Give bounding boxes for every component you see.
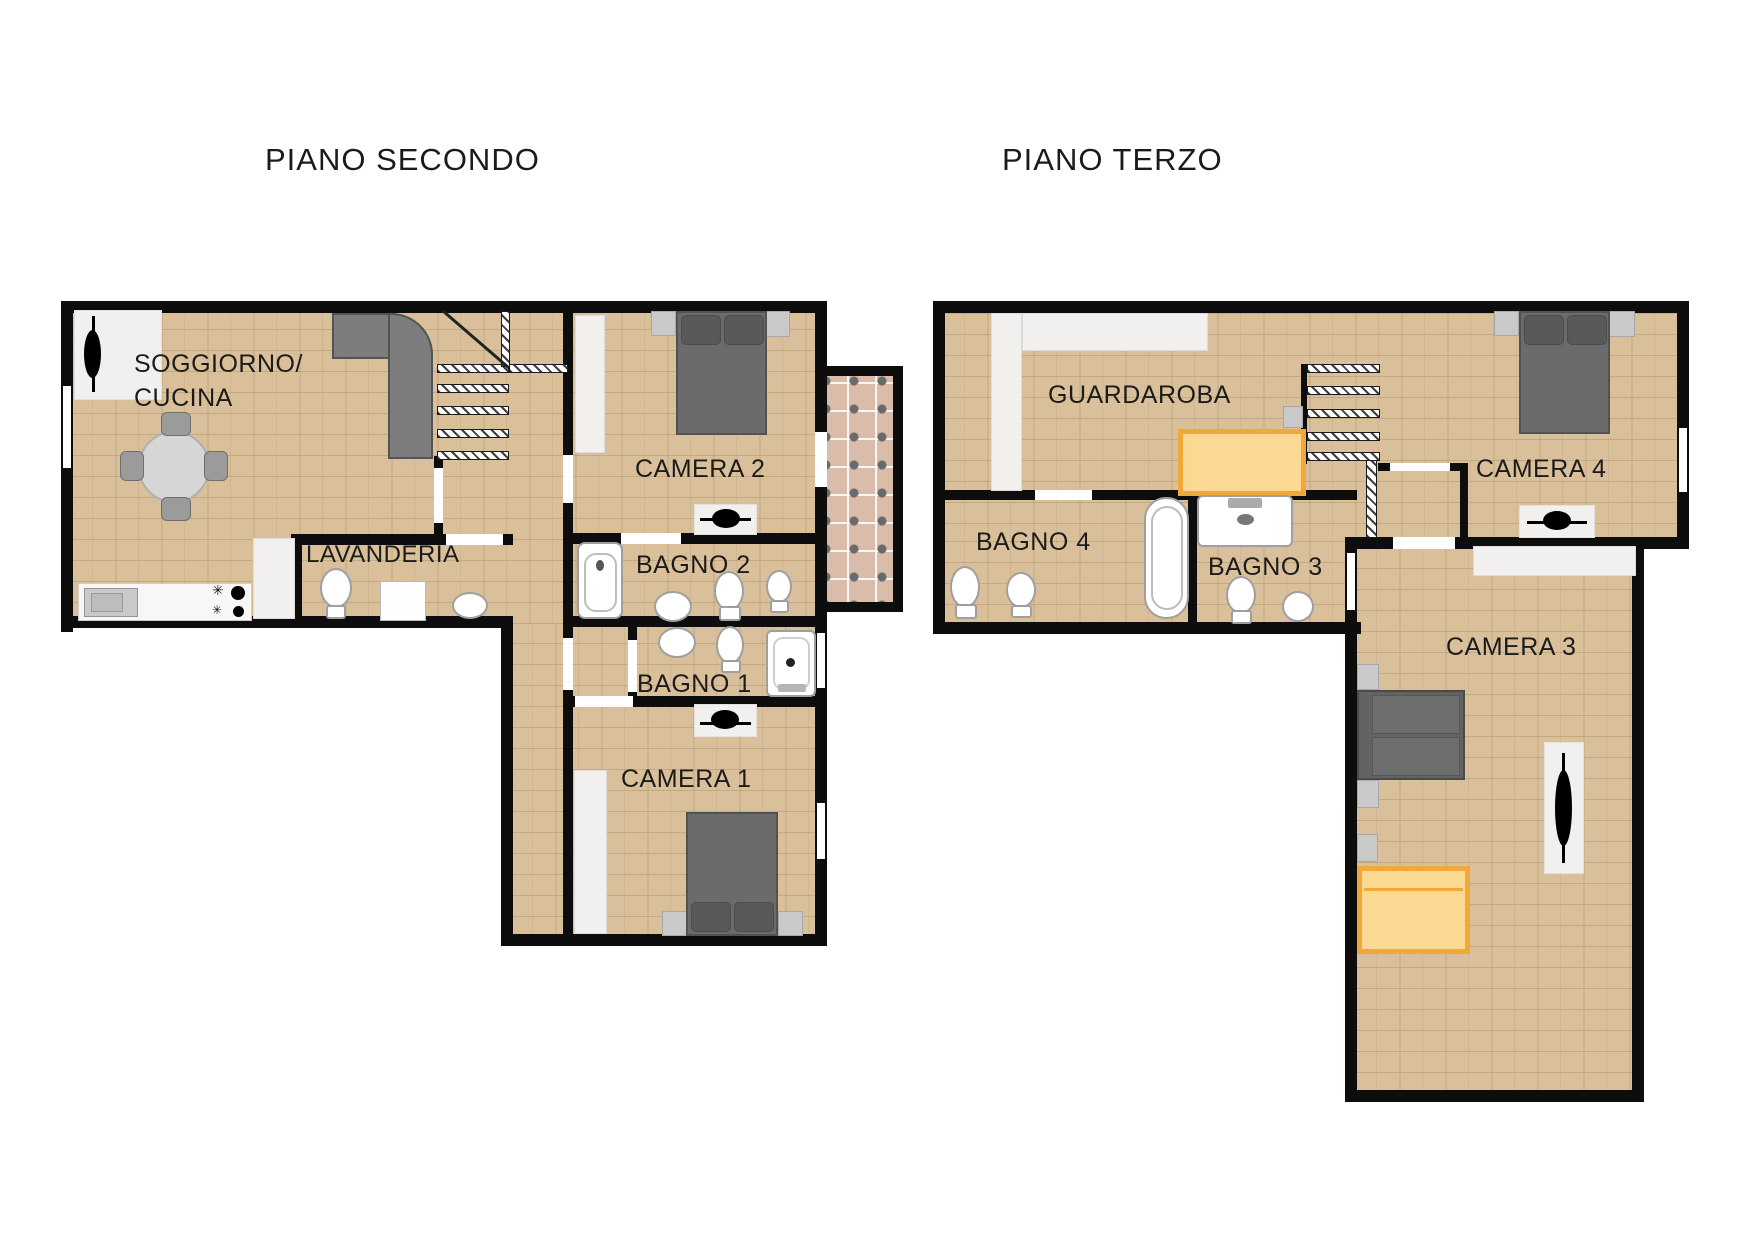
wall (1345, 537, 1357, 1102)
tv-icon (1555, 770, 1572, 846)
room-label-bagno3: BAGNO 3 (1208, 553, 1323, 582)
bidet-icon (1282, 591, 1314, 622)
room-label-camera2: CAMERA 2 (635, 455, 765, 484)
wardrobe-icon (575, 315, 605, 453)
orange-wardrobe-icon (1178, 429, 1306, 496)
wall (1188, 498, 1197, 628)
toilet-icon (1231, 610, 1252, 624)
toilet-icon (955, 604, 977, 619)
pillow (681, 315, 721, 345)
sofa-cushion (1372, 737, 1460, 776)
pillow (1524, 315, 1564, 345)
tv-icon (712, 509, 740, 528)
room-label-bagno2: BAGNO 2 (636, 551, 751, 580)
nightstand (778, 911, 803, 936)
toilet-icon (950, 566, 980, 608)
nightstand (764, 311, 790, 337)
stairs-icon (1307, 364, 1380, 373)
room-label-soggiorno-line2: CUCINA (134, 384, 233, 413)
nightstand (1609, 311, 1635, 337)
wardrobe-icon (1473, 546, 1636, 576)
nightstand (1357, 834, 1378, 862)
pillow (724, 315, 764, 345)
sink-icon (654, 591, 692, 622)
room-label-bagno4: BAGNO 4 (976, 528, 1091, 557)
door-opening (1390, 463, 1450, 471)
wall (1632, 545, 1644, 1102)
nightstand (662, 911, 687, 936)
room-label-bagno1: BAGNO 1 (637, 670, 752, 699)
room-label-camera1: CAMERA 1 (621, 765, 751, 794)
room-label-camera4: CAMERA 4 (1476, 455, 1606, 484)
pillow (734, 902, 774, 932)
bidet-icon (766, 570, 792, 603)
stairs-icon (1307, 432, 1380, 441)
room-label-guardaroba: GUARDAROBA (1048, 381, 1231, 410)
sofa-cushion (1372, 695, 1460, 734)
nightstand (1494, 311, 1519, 336)
bidet-icon (1006, 572, 1036, 608)
window-opening (1679, 428, 1687, 492)
wardrobe-icon (574, 770, 607, 934)
end-table (1357, 664, 1379, 690)
pillow (1567, 315, 1607, 345)
bidet-icon (770, 600, 789, 613)
stairs-icon (1307, 409, 1380, 418)
pillow (691, 902, 731, 932)
floorplan-canvas: PIANO SECONDO PIANO TERZO ✳ (0, 0, 1754, 1241)
floor-area-camera3 (1353, 541, 1636, 1094)
wall (1677, 301, 1689, 549)
door-opening (1347, 553, 1355, 610)
wall (1345, 1090, 1644, 1102)
door-opening (1393, 537, 1455, 549)
faucet (1228, 498, 1262, 508)
tv-icon (1543, 511, 1571, 530)
room-label-lavanderia: LAVANDERIA (306, 541, 460, 569)
stairs-icon (1366, 460, 1377, 538)
stairs-icon (1307, 386, 1380, 395)
faucet (596, 560, 604, 571)
wall (933, 301, 945, 634)
shower-drain (786, 658, 795, 667)
nightstand (1283, 406, 1303, 428)
nightstand (651, 311, 676, 336)
room-label-soggiorno-line1: SOGGIORNO/ (134, 350, 303, 379)
end-table (1357, 780, 1379, 808)
tv-icon (711, 710, 739, 729)
sink-drain (1237, 514, 1254, 525)
shower-head (778, 684, 806, 692)
bidet-icon (1011, 605, 1032, 618)
bathtub-icon (1151, 506, 1183, 610)
sink-icon (658, 627, 696, 658)
wardrobe-icon (991, 313, 1022, 491)
toilet-icon (716, 626, 744, 664)
door-opening (1035, 490, 1092, 500)
wall (1460, 463, 1468, 545)
room-label-camera3: CAMERA 3 (1446, 633, 1576, 662)
orange-bed-pillow (1364, 873, 1463, 891)
toilet-icon (719, 606, 741, 621)
wardrobe-icon (1022, 313, 1208, 351)
wall (933, 622, 1361, 634)
